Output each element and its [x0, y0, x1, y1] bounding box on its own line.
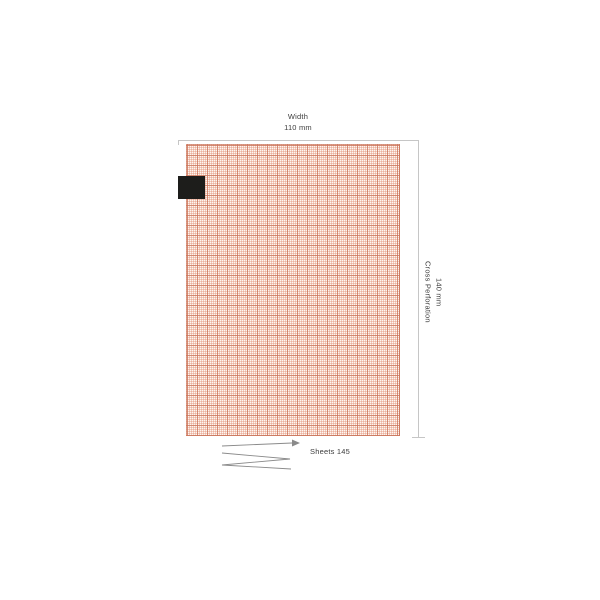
width-dimension-label: Width 110 mm: [178, 111, 418, 134]
cross-perforation-dimension-line: [418, 140, 419, 438]
width-dimension-value: 110 mm: [178, 122, 418, 133]
width-dimension-line: [178, 140, 419, 141]
black-sensing-mark: [178, 176, 205, 199]
zfold-lines: [222, 443, 292, 469]
cross-perforation-label: Cross Perforation 140 mm: [422, 144, 445, 440]
zfold-paper-icon: [214, 436, 310, 476]
feed-arrow-icon: [292, 440, 300, 447]
width-dimension-title: Width: [178, 111, 418, 122]
cross-perforation-value: 140 mm: [433, 144, 444, 440]
sheets-count-label: Sheets 145: [310, 446, 350, 457]
cross-perforation-title: Cross Perforation: [422, 144, 433, 440]
ecg-paper-dimension-diagram: Width 110 mm Cross Perforation 140 mm Sh…: [0, 0, 600, 600]
ecg-grid-paper: [186, 144, 400, 436]
